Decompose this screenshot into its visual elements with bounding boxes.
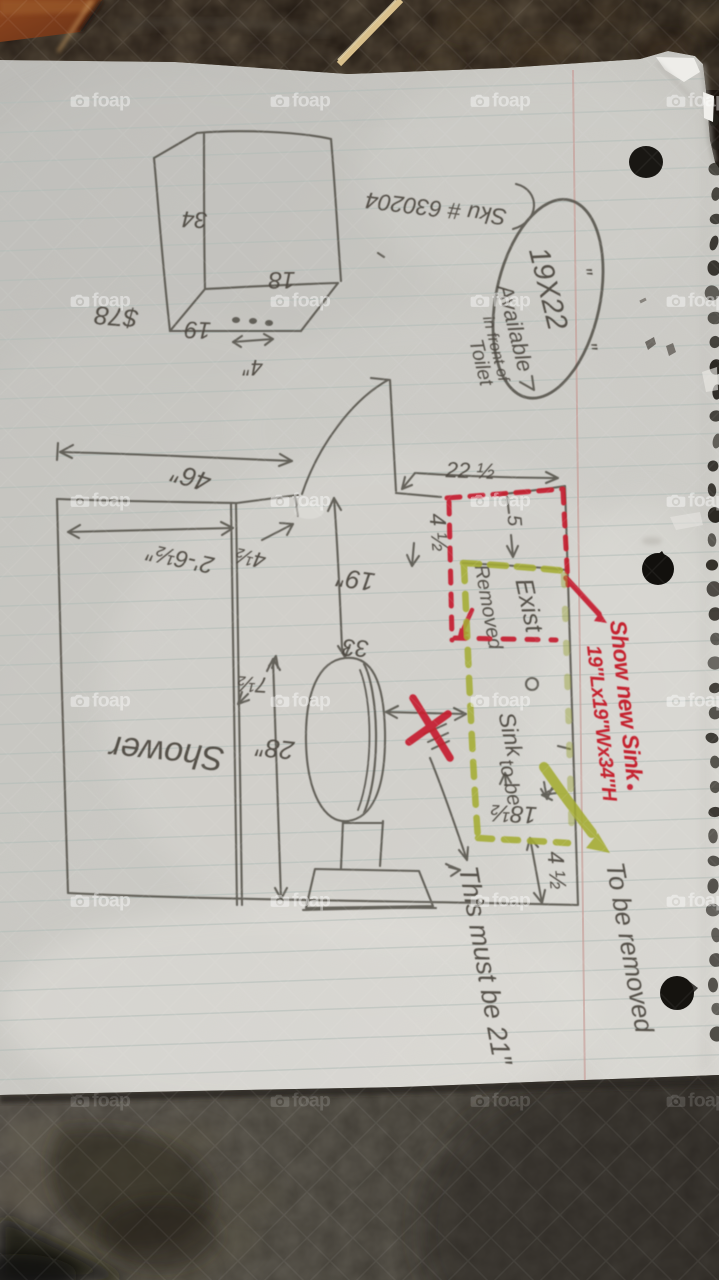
svg-text:4 ½: 4 ½ xyxy=(542,850,571,890)
svg-text:4″: 4″ xyxy=(242,355,263,380)
svg-text:19: 19 xyxy=(184,316,212,344)
svg-text:18: 18 xyxy=(268,266,295,293)
